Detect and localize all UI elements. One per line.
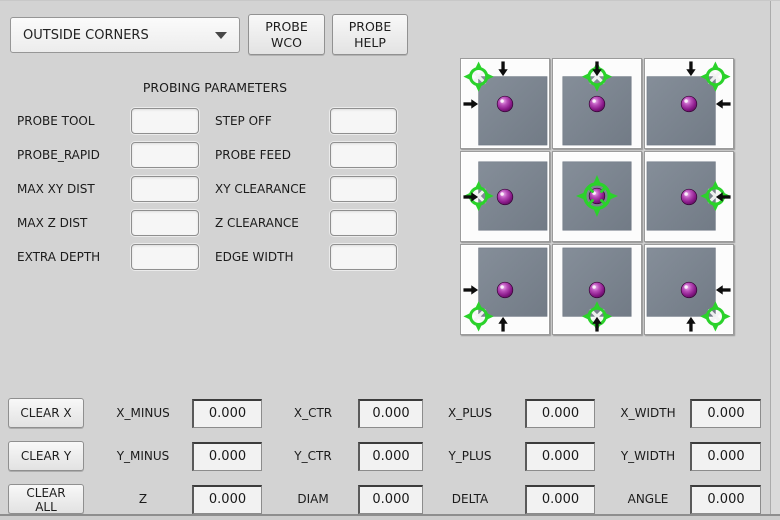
probe-cell-corner-top-left-icon — [461, 59, 549, 148]
y-plus-label: Y_PLUS — [414, 442, 526, 471]
max-xy-dist-input[interactable] — [131, 176, 199, 202]
probe-cell-corner-top-right[interactable] — [644, 58, 734, 149]
z-label: Z — [87, 485, 199, 514]
probe-help-button[interactable]: PROBE HELP — [332, 14, 408, 55]
x-width-label: X_WIDTH — [592, 399, 704, 428]
y-minus-label: Y_MINUS — [87, 442, 199, 471]
step-off-label: STEP OFF — [215, 108, 272, 134]
delta-label: DELTA — [414, 485, 526, 514]
probe-help-label-line1: PROBE — [349, 19, 392, 35]
probe-cell-edge-bottom-icon — [553, 245, 641, 334]
probe-cell-corner-bottom-left[interactable] — [460, 244, 550, 335]
probe-cell-corner-top-right-icon — [645, 59, 733, 148]
step-off-input[interactable] — [330, 108, 397, 134]
probe-cell-edge-right-icon — [645, 152, 733, 241]
probe-wco-label-line1: PROBE — [265, 19, 308, 35]
probe-screen: OUTSIDE CORNERS PROBE WCO PROBE HELP PRO… — [0, 0, 780, 520]
probe-cell-edge-top-icon — [553, 59, 641, 148]
probe-cell-center-icon — [553, 152, 641, 241]
diam-label: DIAM — [257, 485, 369, 514]
x-plus-value-field: 0.000 — [525, 399, 595, 428]
y-width-label: Y_WIDTH — [592, 442, 704, 471]
x-minus-value-field: 0.000 — [192, 399, 262, 428]
z-value-field: 0.000 — [192, 485, 262, 514]
y-plus-value-field: 0.000 — [525, 442, 595, 471]
clear-y-button[interactable]: CLEAR Y — [8, 441, 84, 471]
probe-tool-input[interactable] — [131, 108, 199, 134]
probe-help-label-line2: HELP — [354, 35, 386, 51]
x-width-value-field: 0.000 — [690, 399, 761, 428]
chevron-down-icon — [215, 32, 227, 39]
x-minus-label: X_MINUS — [87, 399, 199, 428]
y-ctr-label: Y_CTR — [257, 442, 369, 471]
probe-cell-corner-bottom-left-icon — [461, 245, 549, 334]
z-clearance-label: Z CLEARANCE — [215, 210, 299, 236]
x-plus-label: X_PLUS — [414, 399, 526, 428]
probe-rapid-input[interactable] — [131, 142, 199, 168]
probe-cell-corner-bottom-right[interactable] — [644, 244, 734, 335]
probe-cell-center[interactable] — [552, 151, 642, 242]
xy-clearance-input[interactable] — [330, 176, 397, 202]
max-z-dist-label: MAX Z DIST — [17, 210, 87, 236]
xy-clearance-label: XY CLEARANCE — [215, 176, 306, 202]
clear-x-button[interactable]: CLEAR X — [8, 398, 84, 428]
probe-cell-corner-bottom-right-icon — [645, 245, 733, 334]
probe-cell-edge-bottom[interactable] — [552, 244, 642, 335]
max-xy-dist-label: MAX XY DIST — [17, 176, 95, 202]
edge-width-label: EDGE WIDTH — [215, 244, 294, 270]
angle-value-field: 0.000 — [690, 485, 761, 514]
probing-parameters-title: PROBING PARAMETERS — [90, 80, 340, 98]
probe-cell-edge-right[interactable] — [644, 151, 734, 242]
right-edge-strip — [770, 1, 780, 520]
probe-tool-label: PROBE TOOL — [17, 108, 95, 134]
extra-depth-input[interactable] — [131, 244, 199, 270]
edge-width-input[interactable] — [330, 244, 397, 270]
angle-label: ANGLE — [592, 485, 704, 514]
x-ctr-label: X_CTR — [257, 399, 369, 428]
y-width-value-field: 0.000 — [690, 442, 761, 471]
probe-wco-label-line2: WCO — [271, 35, 302, 51]
probe-cell-edge-left[interactable] — [460, 151, 550, 242]
delta-value-field: 0.000 — [525, 485, 595, 514]
clear-all-button[interactable]: CLEAR ALL — [8, 484, 84, 514]
bottom-edge-strip — [0, 514, 780, 520]
extra-depth-label: EXTRA DEPTH — [17, 244, 100, 270]
probe-mode-value: OUTSIDE CORNERS — [23, 28, 215, 43]
probe-mode-select[interactable]: OUTSIDE CORNERS — [10, 17, 240, 53]
probe-feed-label: PROBE FEED — [215, 142, 291, 168]
probe-cell-edge-left-icon — [461, 152, 549, 241]
probe-rapid-label: PROBE_RAPID — [17, 142, 100, 168]
probe-cell-edge-top[interactable] — [552, 58, 642, 149]
max-z-dist-input[interactable] — [131, 210, 199, 236]
probe-wco-button[interactable]: PROBE WCO — [248, 14, 325, 55]
y-minus-value-field: 0.000 — [192, 442, 262, 471]
probe-feed-input[interactable] — [330, 142, 397, 168]
probe-cell-corner-top-left[interactable] — [460, 58, 550, 149]
z-clearance-input[interactable] — [330, 210, 397, 236]
